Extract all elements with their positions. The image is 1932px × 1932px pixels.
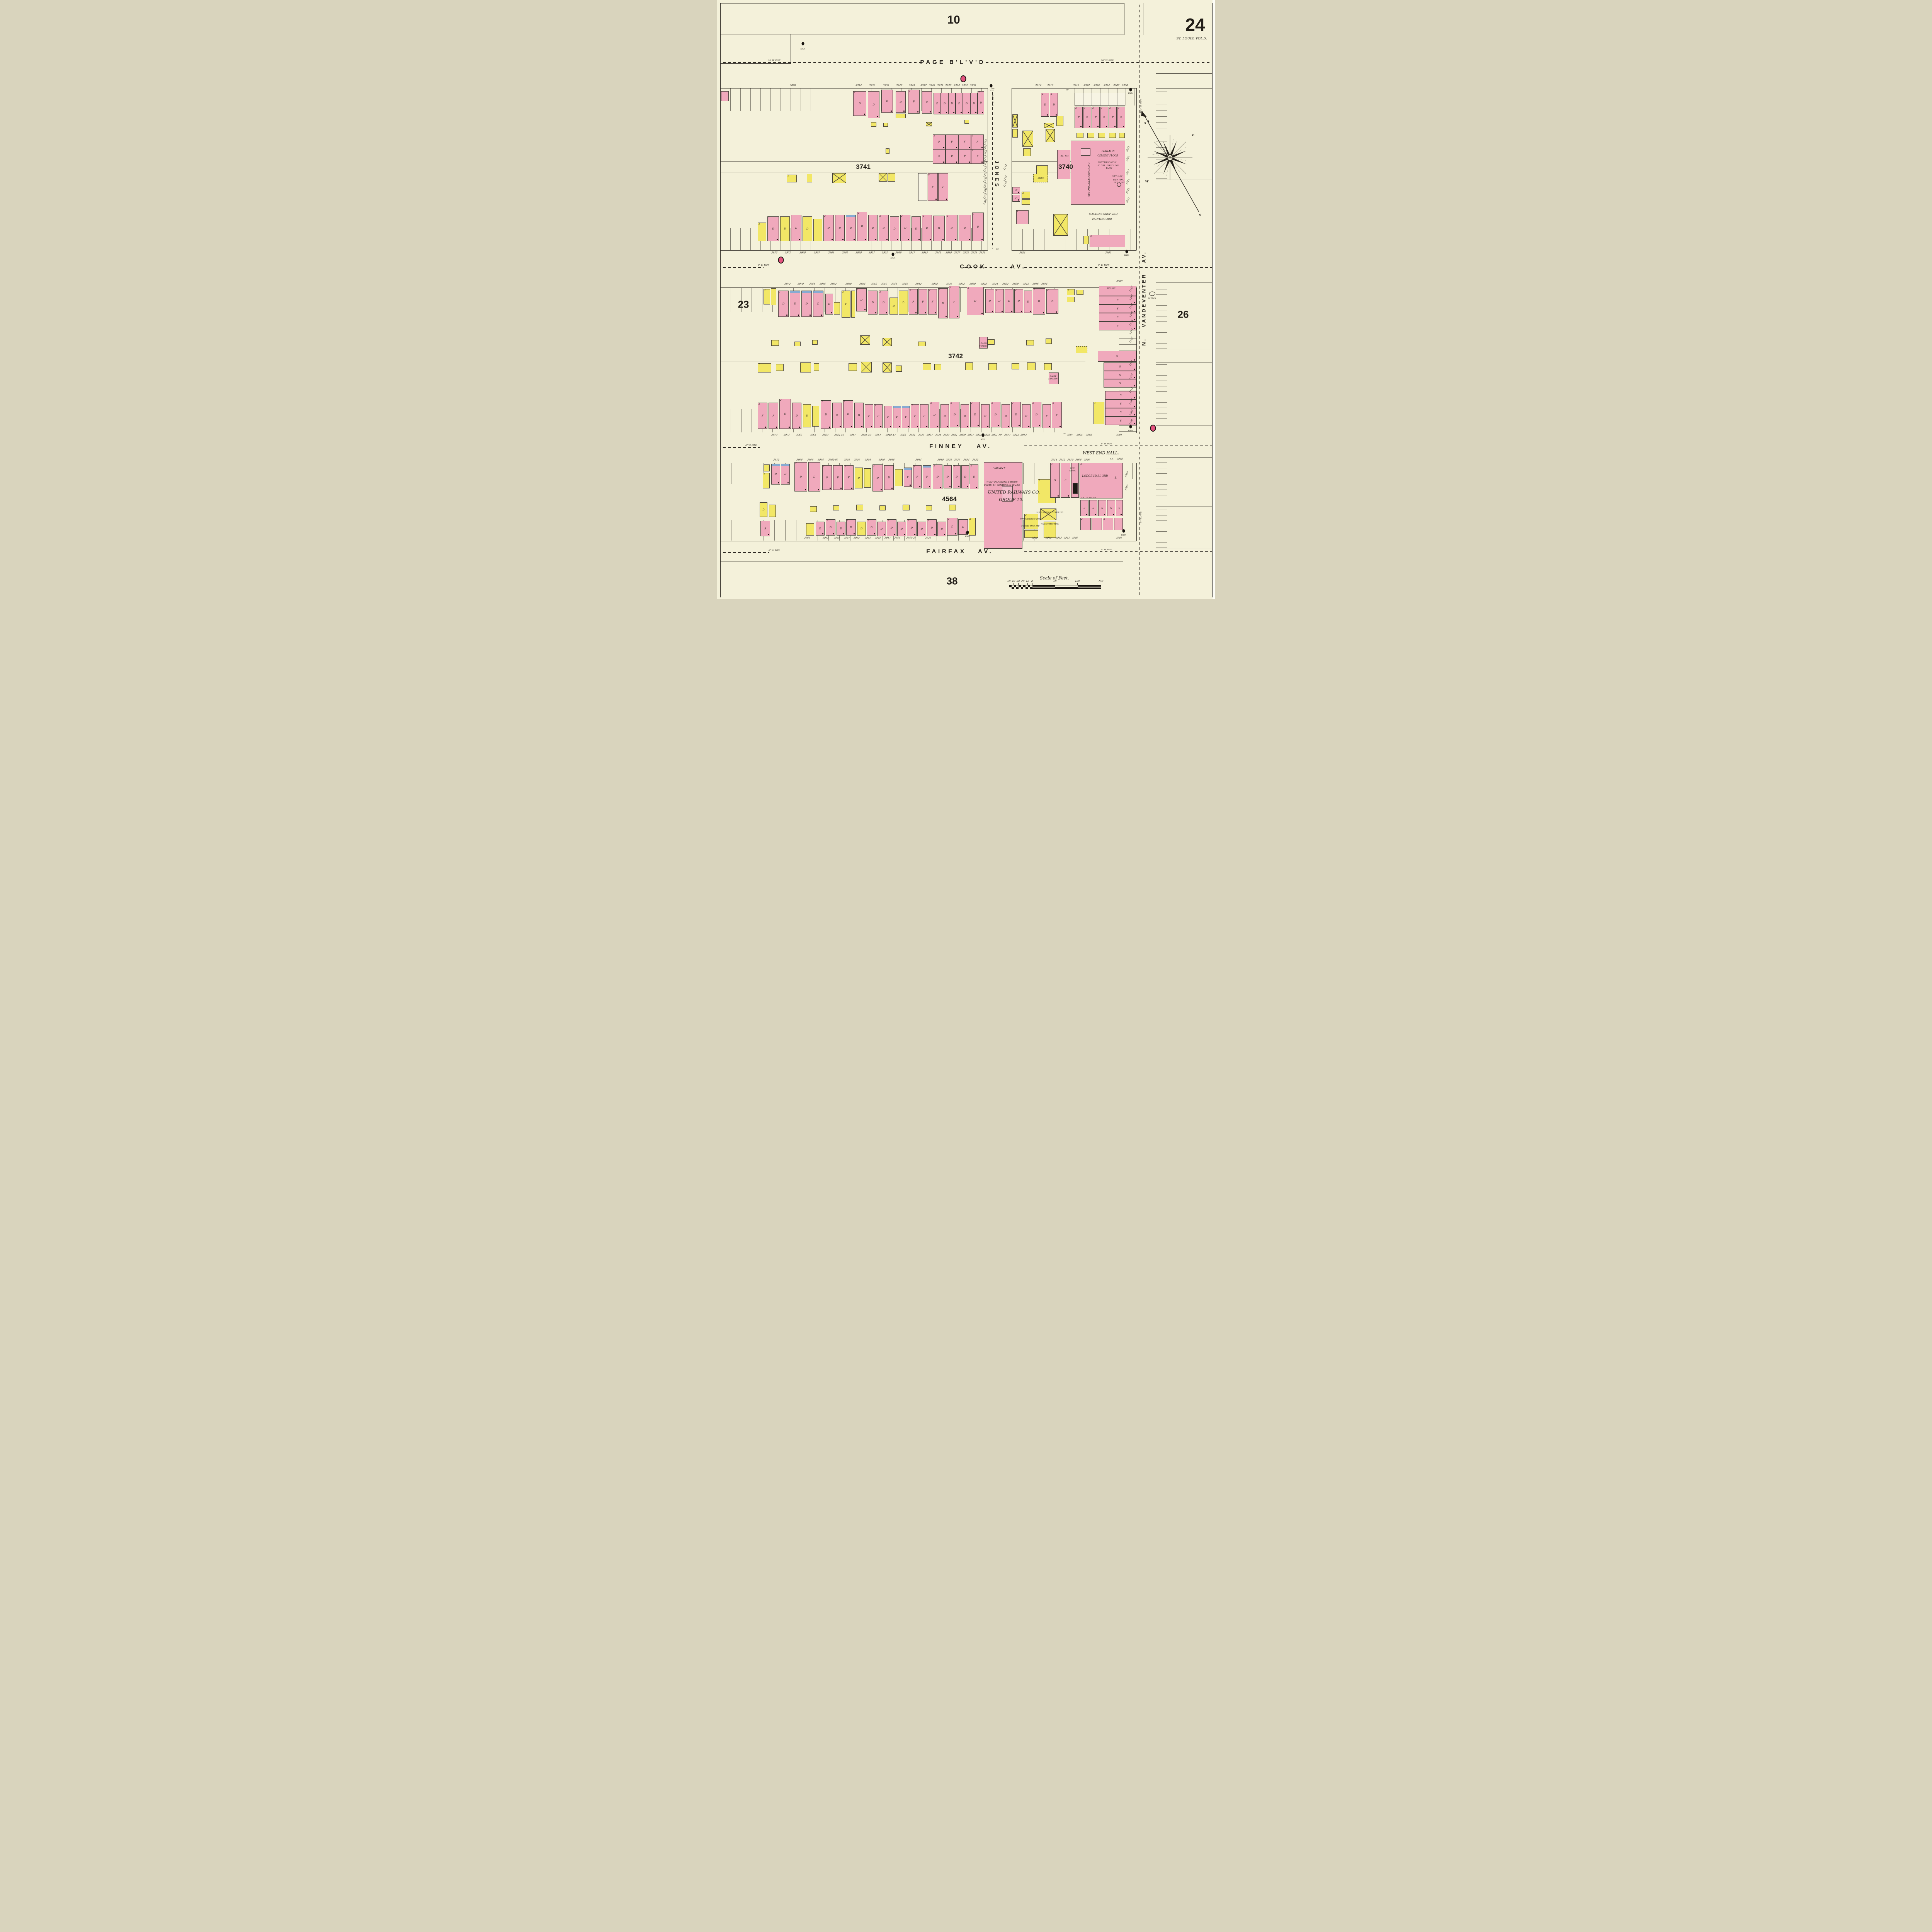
drugs-label: DRUGS [1107, 287, 1115, 290]
street-address-number: 3919 [1031, 537, 1038, 539]
street-address-number: 3902 [1113, 84, 1119, 87]
map-annotation: DAIRY [1050, 375, 1056, 378]
building-footprint: 2F [1075, 107, 1083, 128]
water-pipe-line [723, 447, 760, 448]
water-pipe-line [1024, 446, 1212, 446]
building-footprint: D [985, 289, 994, 313]
building-footprint: 2D [907, 519, 917, 536]
building-footprint: 2D [879, 291, 888, 315]
building-footprint [856, 505, 863, 510]
building-footprint: 2 [1090, 235, 1125, 247]
street-address-number: 3933 [925, 537, 931, 539]
building-footprint: F [923, 465, 931, 488]
map-annotation: 6" W. PIPE [992, 95, 994, 106]
block-line [720, 541, 1136, 541]
street-address-number: 3925 [975, 434, 982, 437]
street-address-number: 3939 [945, 252, 952, 254]
building-footprint: S [1061, 463, 1070, 498]
building-footprint: D [832, 403, 842, 428]
map-annotation: W. MATTRESS MFG. [1041, 524, 1059, 526]
building-footprint [1022, 199, 1030, 205]
street-address-number: 3920 [1012, 283, 1019, 286]
street-address-number: 3947 [908, 252, 915, 254]
building-footprint: 1 [1016, 210, 1029, 224]
building-footprint [879, 173, 887, 182]
scale-tick-label: 30 [1016, 580, 1020, 583]
building-footprint [964, 120, 969, 124]
lot-lines [1156, 508, 1167, 548]
block-line [1156, 73, 1212, 74]
building-footprint [800, 362, 811, 372]
street-address-number: 3932 [961, 84, 968, 87]
building-footprint [776, 364, 784, 371]
building-footprint: D [803, 404, 811, 427]
building-footprint: 2F [933, 134, 946, 149]
building-footprint [1044, 123, 1054, 128]
building-footprint: F [1012, 187, 1020, 194]
building-footprint: F [958, 134, 971, 149]
map-annotation: HAIR & COTTON PICKER 3RD [1036, 512, 1063, 514]
building-footprint: 2F [1092, 107, 1100, 128]
block-line [720, 287, 1136, 288]
building-footprint: F [938, 173, 948, 201]
building-footprint [813, 219, 822, 241]
lot-lines [1156, 458, 1167, 495]
street-address-number: 3908 [1075, 459, 1082, 461]
map-annotation: 50 GAL. GASOLINE [1097, 165, 1119, 167]
building-footprint: D [948, 93, 956, 114]
street-address-number: 3906 [1093, 84, 1100, 87]
building-footprint: 2F [844, 465, 854, 490]
building-footprint: S [1089, 500, 1097, 516]
street-address-number: 3918 [1022, 283, 1029, 286]
building-footprint: D [816, 522, 825, 536]
block-line [1012, 88, 1136, 88]
map-annotation: 60' [992, 88, 995, 90]
building-footprint: 2D [970, 402, 980, 427]
building-footprint: 2F [874, 404, 883, 428]
street-address-number: 3912 [1059, 459, 1065, 461]
street-address-number: 3921-19 [991, 434, 1002, 437]
building-footprint: 2F [1052, 402, 1062, 428]
adjacent-sheet-right: 26 [1178, 309, 1189, 321]
street-address-number: 3965 [804, 537, 810, 539]
street-address-number: 3923 [983, 434, 990, 437]
building-footprint: 2D [823, 215, 834, 241]
building-footprint: S [1116, 500, 1123, 516]
building-footprint: D [884, 465, 894, 490]
building-footprint [771, 288, 776, 305]
building-footprint: D [813, 291, 823, 317]
street-address-number: 3966 [819, 283, 826, 286]
street-address-number: 3940 [937, 459, 944, 461]
building-footprint: D [877, 522, 886, 536]
map-annotation: HYD. [1128, 92, 1133, 95]
street-address-number: 3948 [891, 283, 897, 286]
building-footprint: F [946, 134, 958, 149]
hydrant-dot-icon [1126, 250, 1128, 253]
fire-hydrant-icon [961, 75, 966, 82]
scale-bar-segment [1055, 585, 1078, 589]
scale-tick [1101, 583, 1101, 585]
building-footprint [984, 462, 1022, 549]
street-address-number: 3945 [921, 252, 928, 254]
building-footprint [1083, 236, 1089, 244]
building-footprint: D [857, 522, 866, 536]
building-footprint: 2D [933, 464, 942, 489]
building-footprint [1081, 148, 1090, 156]
map-annotation: BL. SM. [1061, 155, 1069, 157]
building-footprint [1109, 133, 1116, 138]
block-line [1156, 362, 1212, 362]
street-address-number: 3941 [909, 434, 915, 437]
street-address-number: 3949 [874, 537, 881, 539]
building-footprint: 2F [758, 403, 767, 429]
block-line [1156, 496, 1212, 496]
street-address-number: 3947 [884, 537, 891, 539]
block-line [1156, 549, 1212, 549]
street-address-number: 3971 [784, 252, 791, 254]
street-address-number: 3970 [797, 283, 804, 286]
map-annotation: STATION [1048, 378, 1058, 380]
map-annotation: HYD. [980, 439, 985, 441]
scale-tick-label: 100 [1075, 580, 1080, 583]
street-address-number: 3959 [855, 252, 862, 254]
building-footprint [861, 362, 872, 372]
building-footprint: D [808, 462, 820, 492]
building-footprint: 3S [1050, 463, 1060, 498]
map-annotation: 6" W. PIPE [1140, 511, 1142, 523]
adjacent-sheet-top: 10 [947, 14, 960, 27]
building-footprint [923, 363, 931, 370]
building-footprint: S [760, 521, 770, 536]
building-footprint: D [981, 404, 990, 428]
building-footprint: D [940, 404, 949, 428]
building-footprint: F [928, 173, 938, 201]
block-line [1156, 457, 1156, 496]
scale-bar-segment [1078, 585, 1101, 589]
building-footprint: 2D [779, 399, 791, 429]
water-pipe-line [992, 92, 993, 248]
building-footprint: 3 [1080, 463, 1123, 498]
map-annotation: POSTS, 14' CENTERS IN WALLS [984, 484, 1020, 486]
map-annotation: CH. 18' ABV. R'F [1082, 497, 1096, 499]
building-footprint [965, 362, 973, 370]
street-address-number: 3936 [946, 283, 952, 286]
hydrant-dot-icon [892, 253, 895, 256]
compass-s: S [1199, 213, 1201, 217]
street-address-number: 3903 [1085, 434, 1092, 437]
building-footprint: 2D [872, 464, 883, 492]
street-address-number: 3963 [822, 434, 828, 437]
map-annotation: 20' W. PIPE [768, 60, 781, 62]
building-footprint [1075, 93, 1125, 106]
building-footprint: 2D [826, 519, 835, 536]
building-footprint [1012, 363, 1019, 369]
map-annotation: 10' [927, 174, 930, 176]
street-address-number: 1047 [1124, 484, 1129, 491]
building-footprint: 2F [971, 134, 984, 149]
street-address-number: 3901 [1116, 537, 1122, 539]
building-footprint: D [792, 403, 801, 429]
building-footprint [851, 291, 855, 318]
block-line [1156, 507, 1212, 507]
street-address-number: 3957 [844, 537, 850, 539]
street-address-number: 3950 [883, 84, 889, 87]
street-address-number: 3932 [958, 283, 965, 286]
street-address-number: 3971 [783, 434, 790, 437]
building-footprint: F [902, 406, 910, 428]
building-footprint: D [1005, 289, 1014, 313]
block-line [720, 561, 1123, 561]
building-footprint: F [884, 406, 892, 428]
building-footprint: 2F [928, 289, 937, 315]
building-footprint [1026, 340, 1034, 345]
block-line [1156, 88, 1212, 88]
street-address-number: 3952 [871, 283, 877, 286]
scale-tick-label: 150 [1098, 580, 1104, 583]
street-address-number: 3937 [954, 252, 960, 254]
block-line [720, 250, 988, 251]
building-footprint [810, 506, 817, 512]
map-annotation: HYD. [890, 257, 895, 259]
building-footprint: 2D [991, 402, 1000, 427]
building-footprint [879, 505, 886, 510]
street-address-number: 3911 [1063, 537, 1070, 539]
building-footprint: 2D [1050, 93, 1058, 117]
building-footprint: F [922, 91, 932, 114]
building-footprint: 1 [758, 363, 771, 372]
street-address-number: 3961 [842, 252, 848, 254]
street-address-number: 3905 [1105, 252, 1111, 254]
building-footprint: D [912, 216, 921, 241]
street-address-number: 3914 [1041, 283, 1048, 286]
building-footprint [1067, 297, 1075, 302]
street-address-number: 3963 [828, 252, 834, 254]
hydrant-dot-icon [1122, 529, 1125, 533]
building-footprint: F [920, 404, 929, 428]
building-footprint: F [769, 403, 778, 429]
block-line [1156, 350, 1212, 350]
block-line [720, 433, 1136, 433]
building-footprint: 2F [911, 404, 919, 428]
map-annotation: 6" W. PIPE [1098, 264, 1109, 267]
block-number-3740: 3740 [1058, 163, 1073, 171]
street-address-number: 3930 [969, 84, 976, 87]
scale-bar-segment [1032, 585, 1055, 589]
building-footprint: D [771, 464, 780, 485]
building-footprint: 2D [1032, 402, 1041, 427]
map-annotation: 60' [996, 248, 999, 250]
map-annotation: AUTOMOBILE REPAIRING [1087, 162, 1090, 197]
street-address-number: 3930 [969, 283, 976, 286]
building-footprint: F [918, 289, 927, 315]
building-footprint: S [1098, 500, 1106, 516]
map-annotation: HYD. [1128, 430, 1133, 432]
street-address-number: 3952 [869, 84, 875, 87]
block-line [1156, 282, 1212, 282]
building-footprint: D [917, 522, 926, 536]
hydrant-dot-icon [966, 531, 969, 534]
street-address-number: 3933 [971, 252, 977, 254]
building-footprint [833, 505, 839, 510]
building-footprint: 2D [1046, 289, 1058, 314]
building-footprint: 2D [856, 288, 867, 311]
block-line [1143, 3, 1143, 35]
street-label-jones: JONES [994, 160, 1000, 189]
street-label-cook-av: COOK AV. [960, 264, 1026, 270]
building-footprint [1012, 114, 1018, 128]
street-address-number: 3934 [953, 84, 960, 87]
building-footprint: 2D [900, 215, 910, 241]
building-footprint [1092, 518, 1102, 530]
building-footprint [883, 123, 888, 127]
map-annotation: 6" W. PIPE [1101, 549, 1112, 551]
building-footprint [834, 302, 840, 315]
building-footprint [849, 363, 857, 371]
building-footprint [721, 91, 729, 101]
building-footprint: 2D [887, 519, 896, 536]
street-address-number: 3950 [878, 459, 885, 461]
map-annotation: 6" W. PIPE [758, 264, 769, 267]
lodge-hall-label: LODGE HALL 3RD [1082, 474, 1108, 478]
building-footprint: 2D [930, 402, 939, 428]
street-address-number: 1201 [983, 198, 988, 205]
building-footprint: 1 [1094, 402, 1104, 424]
building-footprint [949, 505, 956, 510]
street-address-number: 3938 [937, 84, 943, 87]
building-footprint: D [855, 468, 863, 488]
block-line [791, 34, 791, 64]
map-annotation: UPHOLSTERING 2ND [1020, 519, 1040, 520]
building-footprint: 2D [846, 519, 856, 536]
block-number-3742: 3742 [948, 352, 963, 360]
sanborn-map-sheet: 10 24 ST. LOUIS, VOL.5. 23 26 38 PAGE B'… [717, 0, 1215, 599]
street-address-number: 3962-60 [828, 459, 838, 461]
street-address-number: 3941 [935, 252, 941, 254]
building-footprint: S [1104, 379, 1136, 388]
block-number-3741: 3741 [856, 163, 871, 171]
building-footprint [1027, 362, 1036, 370]
building-footprint [871, 122, 876, 127]
building-footprint: 2D [879, 215, 889, 241]
map-annotation: MACHINE SHOP 2ND, [1089, 213, 1118, 216]
block-line [1156, 425, 1212, 425]
building-footprint: 1 [1067, 289, 1075, 295]
building-footprint: F [946, 149, 958, 164]
street-address-number: 3967 [813, 252, 820, 254]
building-footprint: D [846, 215, 856, 241]
block-line [720, 88, 988, 88]
street-address-number: 3915 [1012, 434, 1019, 437]
building-footprint: 2D [1041, 93, 1049, 117]
street-address-number: 3932 [972, 459, 978, 461]
map-annotation: OFF. 1ST [1112, 175, 1122, 177]
building-footprint: D [760, 502, 767, 517]
scale-bar [1009, 585, 1101, 589]
building-footprint: 2D [1033, 288, 1045, 315]
map-annotation: HYD. [1121, 534, 1126, 536]
street-address-number: 3905 [1076, 434, 1083, 437]
street-address-number: 3961 [822, 537, 829, 539]
street-address-number: 3924 [992, 283, 998, 286]
street-address-number: 3938 [946, 459, 952, 461]
united-railways-label: UNITED RAILWAYS CO. [988, 490, 1040, 495]
block-line [1156, 457, 1212, 457]
building-footprint: F [933, 149, 946, 164]
block-line [720, 63, 791, 64]
street-address-number: 3915 [1045, 537, 1052, 539]
street-address-number: 3972 [773, 459, 779, 461]
street-label-vandeventer-av: N. VANDEVENTER AV. [1141, 251, 1147, 346]
building-footprint: 2D [967, 287, 984, 315]
building-footprint: D [868, 291, 878, 315]
building-footprint: S [1107, 500, 1115, 516]
map-annotation: 6" W. PIPE [769, 549, 780, 552]
street-address-number: 3962 [830, 283, 837, 286]
street-address-number: 3958 [845, 283, 852, 286]
building-footprint: F [1043, 404, 1051, 428]
building-footprint [794, 342, 801, 346]
block-line [1136, 463, 1137, 541]
block-line [720, 3, 721, 597]
building-footprint: 2F [822, 465, 832, 490]
street-address-number: 3948 [888, 459, 895, 461]
street-address-number: 3944 [908, 84, 915, 87]
building-footprint [883, 362, 892, 372]
map-annotation: 12" W. PIPE [1140, 99, 1142, 111]
building-footprint [1071, 141, 1125, 205]
map-annotation: DAIRY [981, 342, 987, 345]
building-footprint: F [893, 406, 901, 428]
building-footprint [1046, 129, 1055, 142]
street-label-finney-av: FINNEY AV. [929, 443, 992, 450]
building-footprint: D [780, 216, 790, 241]
water-pipe-line [1139, 5, 1140, 595]
street-label-fairfax-av: FAIRFAX AV. [926, 548, 993, 555]
building-footprint: D [1022, 404, 1031, 428]
map-annotation: TANK [1106, 167, 1112, 170]
building-footprint [988, 363, 997, 370]
sheet-number: 24 [1185, 14, 1205, 35]
building-footprint: D [835, 215, 845, 241]
building-footprint: D [803, 216, 812, 241]
street-address-number: 3957 [849, 434, 856, 437]
map-annotation: SHED [1038, 177, 1044, 180]
street-address-number: 3936 [954, 459, 960, 461]
scale-bar-segment [1009, 585, 1032, 589]
block-line [1124, 3, 1124, 35]
map-annotation: 15' [1063, 433, 1066, 435]
building-footprint [1114, 518, 1123, 530]
building-footprint [918, 173, 927, 201]
street-address-number: 3958 [844, 459, 850, 461]
street-address-number: 3931 [979, 252, 985, 254]
map-annotation: PORTABLE IRON [1098, 162, 1117, 164]
building-footprint: D [934, 93, 941, 114]
building-footprint: 2D [953, 465, 961, 488]
block-line [1156, 362, 1156, 425]
street-address-number: 3907 [1066, 434, 1073, 437]
building-footprint [769, 505, 776, 517]
building-footprint [1012, 129, 1018, 138]
building-footprint: 2F [909, 289, 918, 315]
building-footprint: D [825, 294, 833, 315]
building-footprint [926, 505, 932, 510]
building-footprint: 3F [949, 286, 959, 318]
building-footprint: D [781, 464, 790, 485]
street-address-number: 3933 [943, 434, 949, 437]
